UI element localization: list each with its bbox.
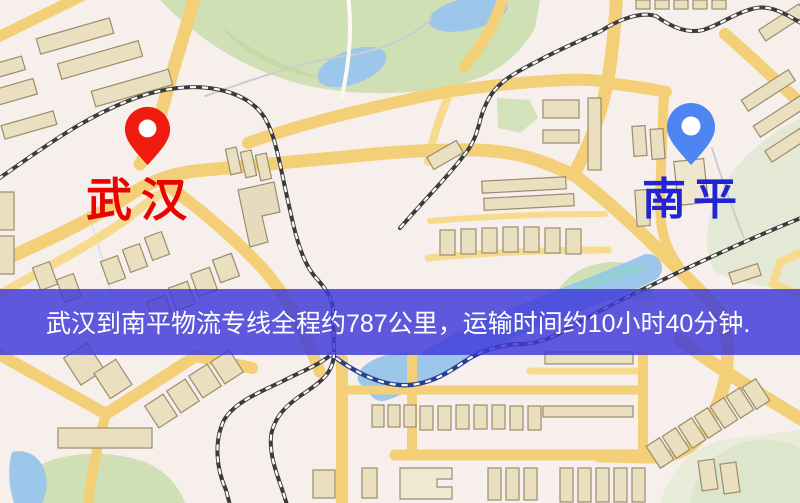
route-info-banner: 武汉到南平物流专线全程约787公里，运输时间约10小时40分钟. [0, 289, 800, 355]
map-pin-icon [124, 104, 171, 168]
map-pin-icon [666, 102, 716, 166]
map-graphics [0, 0, 800, 503]
map-canvas[interactable]: 武汉 南平 武汉到南平物流专线全程约787公里，运输时间约10小时40分钟. [0, 0, 800, 503]
route-info-text: 武汉到南平物流专线全程约787公里，运输时间约10小时40分钟. [46, 304, 750, 340]
destination-pin[interactable] [666, 102, 716, 166]
origin-pin[interactable] [124, 104, 171, 168]
origin-pin-hole [139, 120, 157, 138]
destination-label: 南平 [642, 178, 744, 222]
origin-label: 武汉 [86, 177, 196, 223]
destination-pin-hole [682, 117, 701, 136]
